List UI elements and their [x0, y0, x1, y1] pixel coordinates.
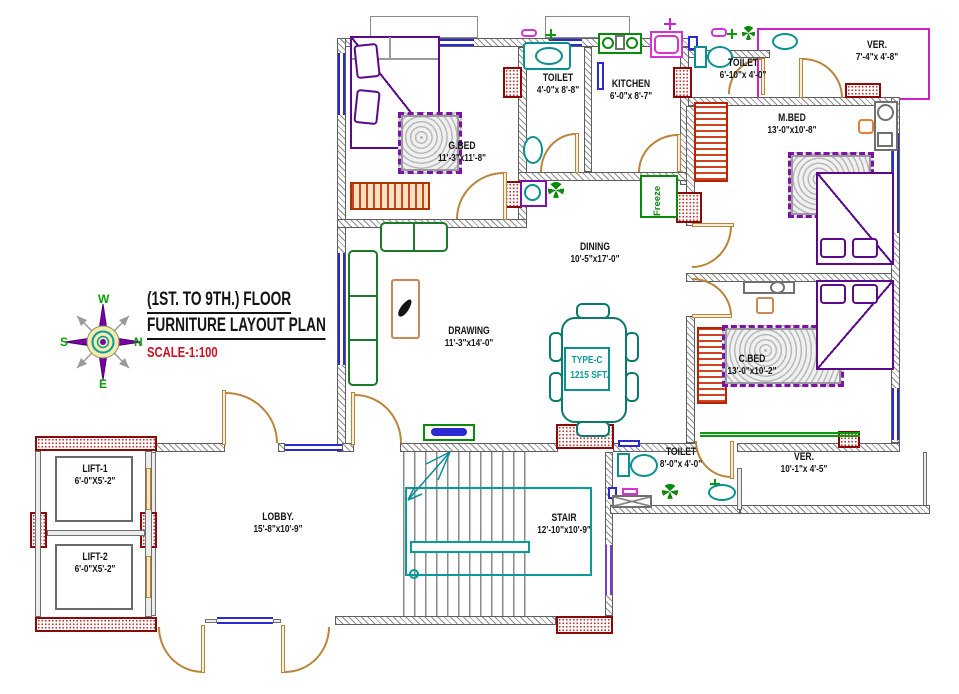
pillow [820, 238, 846, 258]
plant-icon [662, 484, 678, 499]
door-leaf [281, 625, 285, 673]
room-label-lift2: LIFT-2 6'-0"X5'-2" [69, 551, 121, 575]
wash-basin [772, 33, 798, 50]
column [35, 617, 157, 632]
wash-basin [523, 136, 543, 164]
desk-fan [877, 104, 894, 121]
room-label-cbed: C.BED 13'-0"x10'-2" [721, 353, 784, 377]
plant-icon [742, 26, 755, 40]
column [676, 192, 702, 223]
room-label-dining: DINING 10'-5"x17'-0" [564, 241, 627, 265]
column [556, 616, 613, 634]
bed-rail [389, 37, 391, 59]
door-swing [355, 394, 402, 443]
plant-icon [548, 182, 564, 198]
compass-east: E [99, 377, 107, 391]
plan-subtitle: FURNITURE LAYOUT PLAN [147, 315, 395, 340]
door-leaf [677, 134, 681, 172]
compass-north: N [134, 335, 143, 349]
door-leaf [575, 133, 579, 173]
tv [431, 428, 467, 436]
dining-chair [625, 372, 639, 402]
wall [737, 468, 742, 510]
door-leaf [692, 314, 732, 318]
toilet-tank [617, 453, 630, 477]
soap-tray [622, 488, 638, 495]
toilet-tank [694, 46, 707, 68]
dining-chair [576, 303, 610, 319]
pan-bowl [535, 47, 563, 65]
window [285, 444, 342, 451]
towel-rail [597, 62, 604, 90]
column [845, 83, 881, 98]
plan-title: (1ST. TO 9TH.) FLOOR [147, 289, 347, 314]
wall [278, 443, 285, 452]
shower-head [711, 28, 727, 37]
window [217, 617, 273, 624]
door-swing [540, 133, 576, 172]
room-label-lobby: LOBBY. 15'-8"x10'-9" [247, 511, 310, 535]
wall [35, 451, 41, 617]
plant-icon [545, 29, 556, 40]
counter [615, 35, 625, 50]
compass-rose: W N E S [60, 294, 146, 390]
pillow [353, 43, 380, 79]
wall [155, 443, 225, 452]
door-swing [285, 627, 330, 673]
study-desk [743, 281, 795, 294]
door-swing [638, 134, 678, 172]
room-label-toilet-mid: TOILET 6'-10"x 4'-0" [713, 57, 773, 81]
dining-chair [549, 332, 563, 362]
pillow [353, 89, 380, 125]
door-leaf [730, 441, 734, 479]
door-swing [158, 627, 203, 673]
room-label-drawing: DRAWING 11'-3"x14'-0" [438, 325, 500, 349]
dining-chair [576, 421, 610, 437]
floor-plan-canvas: Freeze TYPE-C 1215 SFT. G.BED 11'-3"x11'… [0, 0, 959, 694]
wall [47, 530, 145, 536]
window [338, 53, 345, 115]
door-swing [226, 392, 278, 443]
door-leaf [201, 625, 205, 673]
sofa [380, 222, 448, 252]
shower-head [521, 29, 537, 37]
compass-west: W [98, 292, 109, 306]
plant-icon [727, 29, 737, 39]
unit-type-tag: TYPE-C 1215 SFT. [564, 347, 610, 391]
door-swing [692, 226, 732, 268]
compass-star-icon [61, 300, 145, 384]
room-label-lift1: LIFT-1 6'-0"X5'-2" [69, 463, 121, 487]
wardrobe [694, 102, 728, 182]
burner [626, 37, 638, 49]
ceiling-fan-icon [664, 18, 676, 30]
room-label-toilet-bottom: TOILET 8'-0"x 4'-0" [654, 446, 708, 470]
stair-landing-rail [410, 541, 530, 553]
room-label-toilet-top: TOILET 4'-0"x 8'-8" [531, 72, 585, 96]
door-leaf [351, 392, 355, 445]
shoe-rack [618, 440, 640, 447]
desk-fan [770, 281, 785, 294]
wall [584, 47, 592, 172]
wall [740, 505, 930, 514]
wall [686, 316, 695, 443]
room-label-gbed: G.BED 11'-3"x11'-8" [431, 140, 493, 164]
clothesline [700, 432, 860, 437]
door-leaf [799, 58, 803, 98]
stair-direction-arrow [398, 448, 454, 506]
burner [602, 37, 614, 49]
plan-scale: SCALE-1:100 [147, 344, 241, 362]
room-label-ver-top: VER. 7'-4"x 4'-8" [850, 39, 904, 63]
dining-chair [549, 372, 563, 402]
column [35, 436, 157, 451]
wall [273, 619, 281, 623]
dining-chair [625, 332, 639, 362]
door-swing [692, 278, 732, 316]
plan-title-line2: FURNITURE LAYOUT PLAN [147, 315, 326, 340]
pillow [852, 238, 878, 258]
compass-south: S [60, 335, 68, 349]
room-label-stair: STAIR 12'-10"x10'-9" [530, 512, 599, 536]
window [892, 388, 899, 440]
door-swing [456, 172, 504, 219]
door-leaf [503, 172, 507, 220]
plan-title-line1: (1ST. TO 9TH.) FLOOR [147, 289, 291, 314]
dresser [350, 182, 430, 210]
wash-basin [524, 184, 541, 201]
stair-start-marker [409, 569, 419, 579]
chair [858, 119, 874, 134]
wall [205, 619, 217, 623]
unit-area: 1215 SFT. [570, 369, 604, 381]
floor-trap [612, 495, 652, 508]
pillow [820, 284, 846, 304]
room-label-ver-bottom: VER. 10'-1"x 4'-5" [774, 451, 834, 475]
room-label-mbed: M.BED 13'-0"x10'-8" [761, 112, 824, 136]
room-label-kitchen: KITCHEN 6'-0"x 8'-7" [604, 78, 658, 102]
door-leaf [692, 223, 734, 227]
window [605, 545, 612, 595]
plan-scale-text: SCALE-1:100 [147, 344, 218, 361]
column [673, 67, 692, 98]
window-sill [370, 16, 478, 38]
lift-door [146, 556, 151, 598]
wash-basin [708, 484, 736, 501]
refrigerator-label: Freeze [652, 178, 663, 216]
wall [335, 616, 556, 625]
verandah-bottom-edge [923, 452, 927, 508]
column [503, 67, 522, 98]
sink-basin [654, 35, 679, 54]
monitor [877, 132, 893, 147]
lift-door [146, 468, 151, 510]
unit-type: TYPE-C [570, 354, 604, 366]
pillow [852, 284, 878, 304]
door-leaf [222, 390, 226, 445]
chair [756, 297, 774, 314]
